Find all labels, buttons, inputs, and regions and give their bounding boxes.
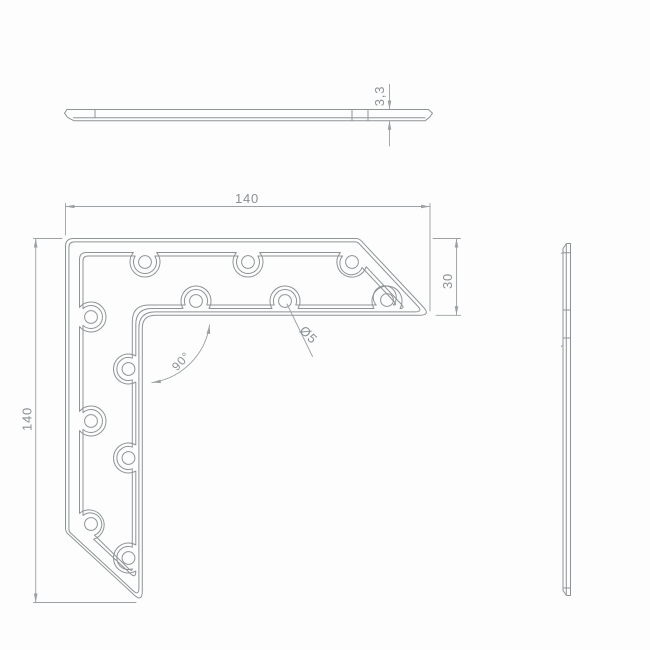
dim-label-thickness: 3,3 (372, 86, 387, 106)
arrowhead (455, 306, 459, 315)
hole (85, 311, 98, 324)
arrowhead (421, 205, 430, 209)
dim-leg-width: 30 (433, 239, 461, 316)
hole (279, 295, 292, 308)
rim-step-contour (69, 242, 420, 593)
mounting-holes (85, 256, 394, 565)
dim-label-height: 140 (20, 407, 35, 431)
hole (122, 452, 135, 465)
arrowhead (34, 594, 38, 603)
dim-overall-width: 140 (66, 191, 431, 311)
hole (85, 518, 98, 531)
hole (122, 552, 135, 565)
pocket-scallop-inner (83, 256, 396, 570)
bracket-drawing: 3,3 140 140 30 (0, 0, 650, 650)
arrowhead (388, 101, 392, 110)
side-view (561, 244, 571, 596)
arrowhead (66, 205, 75, 209)
dim-label-width: 140 (235, 191, 259, 206)
dim-angle: 90° (152, 325, 212, 385)
hole (139, 256, 152, 269)
technical-drawing-page: 3,3 140 140 30 (0, 0, 650, 650)
arrowhead (388, 121, 392, 130)
dim-label-leg-width: 30 (440, 273, 455, 289)
dim-overall-height: 140 (20, 239, 137, 603)
hole (122, 363, 135, 376)
hole (190, 295, 203, 308)
front-view (66, 239, 427, 598)
outer-contour (66, 239, 427, 598)
hole (346, 256, 359, 269)
hole (85, 415, 98, 428)
pocket-scallop-outer (80, 253, 404, 576)
dim-label-hole-diameter: Ø5 (297, 323, 321, 347)
dim-label-angle: 90° (169, 349, 193, 374)
top-view (65, 110, 433, 121)
hole (381, 294, 394, 307)
top-view-outline (65, 110, 433, 121)
dim-thickness: 3,3 (372, 85, 391, 147)
arrowhead (455, 239, 459, 248)
hole (242, 256, 255, 269)
arrowhead (34, 239, 38, 248)
